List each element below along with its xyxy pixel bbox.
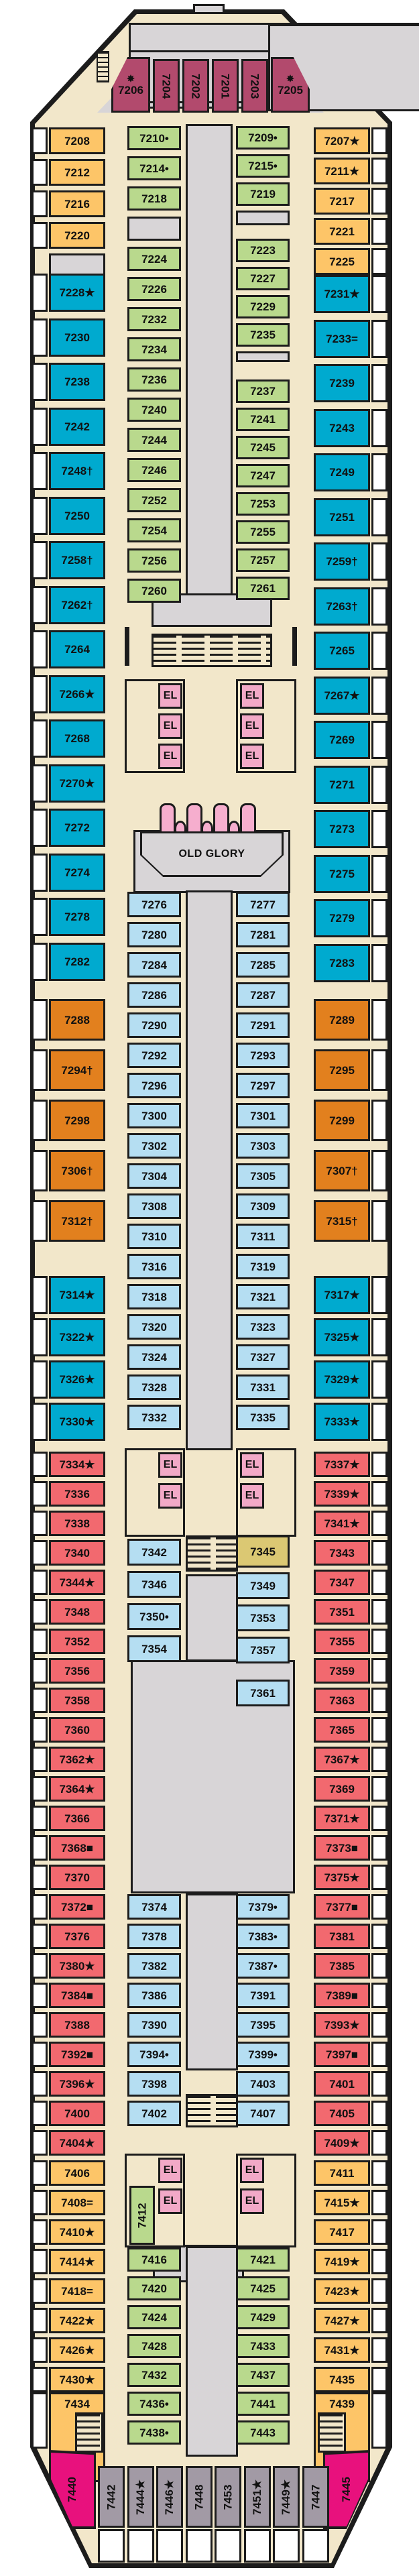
balcony xyxy=(32,1658,48,1684)
cabin-7350: 7350• xyxy=(127,1603,181,1630)
cabin-7233: 7233= xyxy=(314,320,370,358)
balcony xyxy=(371,855,387,893)
public-space-void xyxy=(186,2246,238,2457)
stairs xyxy=(75,2412,103,2453)
cabin-number: 7292 xyxy=(141,1050,167,1061)
cabin-7266: 7266★ xyxy=(49,675,105,713)
balcony xyxy=(371,2042,387,2067)
cabin-number: 7244 xyxy=(141,434,167,446)
cabin-number: 7254 xyxy=(141,525,167,536)
cabin-number: 7231★ xyxy=(324,288,359,300)
balcony xyxy=(371,320,387,358)
cabin-number: 7429 xyxy=(250,2312,276,2323)
cabin-7219: 7219 xyxy=(236,182,290,206)
cabin-7444: 7444★ xyxy=(127,2466,154,2528)
cabin-number: 7258† xyxy=(61,554,93,566)
cabin-number: 7397■ xyxy=(326,2049,358,2060)
cabin-number: 7369 xyxy=(329,1783,355,1795)
cabin-7232: 7232 xyxy=(127,307,181,331)
cabin-number: 7219 xyxy=(250,188,276,200)
cabin-7388: 7388 xyxy=(49,2012,105,2038)
cabin-number: 7337★ xyxy=(324,1459,359,1470)
cabin-number: 7211★ xyxy=(324,166,359,177)
cabin-number: 7266★ xyxy=(59,689,95,700)
cabin-number: 7434 xyxy=(64,2398,90,2410)
balcony xyxy=(32,898,48,936)
cabin-7368: 7368■ xyxy=(49,1835,105,1861)
cabin-number: 7370 xyxy=(64,1872,90,1883)
cabin-7426: 7426★ xyxy=(49,2337,105,2363)
cabin-number: 7308 xyxy=(141,1201,167,1212)
cabin-number: 7297 xyxy=(250,1080,276,1092)
cabin-number: 7396★ xyxy=(59,2079,95,2090)
cabin-number: 7432 xyxy=(141,2369,167,2381)
balcony xyxy=(32,2071,48,2097)
balcony xyxy=(215,2529,241,2563)
cabin-7223: 7223 xyxy=(236,239,290,262)
cabin-7340: 7340 xyxy=(49,1540,105,1566)
cabin-number: 7334★ xyxy=(59,1459,95,1470)
cabin-7351: 7351 xyxy=(314,1599,370,1625)
cabin-7246: 7246 xyxy=(127,458,181,482)
balcony xyxy=(371,2367,387,2392)
cabin-number: 7241 xyxy=(250,414,276,425)
cabin-number: 7342 xyxy=(141,1547,167,1558)
cabin-7259: 7259† xyxy=(314,542,370,581)
cabin-7409: 7409★ xyxy=(314,2130,370,2156)
balcony xyxy=(32,408,48,446)
cabin-number: 7335 xyxy=(250,1412,276,1423)
cabin-7396: 7396★ xyxy=(49,2071,105,2097)
cabin-number: 7418= xyxy=(61,2286,93,2297)
cabin-number: 7445 xyxy=(341,2477,353,2502)
cabin-number: 7290 xyxy=(141,1020,167,1031)
elevator: EL xyxy=(158,683,182,709)
cabin-7256: 7256 xyxy=(127,548,181,573)
cabin-7355: 7355 xyxy=(314,1629,370,1654)
old-glory-ornament xyxy=(160,803,176,835)
cabin-number: 7363 xyxy=(329,1695,355,1706)
balcony xyxy=(371,1100,387,1141)
cabin-number: 7296 xyxy=(141,1080,167,1092)
cabin-number: 7236 xyxy=(141,374,167,386)
cabin-7359: 7359 xyxy=(314,1658,370,1684)
cabin-number: 7356 xyxy=(64,1665,90,1677)
balcony xyxy=(32,222,48,249)
cabin-number: 7451★ xyxy=(251,2479,263,2514)
cabin-number: 7365 xyxy=(329,1724,355,1736)
cabin-number: 7285 xyxy=(250,959,276,971)
balcony xyxy=(371,2249,387,2274)
old-glory-ornament xyxy=(186,803,202,835)
cabin-7437: 7437 xyxy=(236,2363,290,2387)
cabin-7354: 7354 xyxy=(127,1635,181,1662)
cabin-7286: 7286 xyxy=(127,982,181,1008)
balcony xyxy=(371,1717,387,1743)
cabin-7427: 7427★ xyxy=(314,2308,370,2333)
balcony xyxy=(32,1953,48,1979)
balcony xyxy=(186,2529,213,2563)
cabin-7352: 7352 xyxy=(49,1629,105,1654)
cabin-7253: 7253 xyxy=(236,492,290,516)
cabin-number: 7262† xyxy=(61,599,93,611)
cabin-7263: 7263† xyxy=(314,587,370,626)
cabin-number: 7359 xyxy=(329,1665,355,1677)
cabin-7410: 7410★ xyxy=(49,2219,105,2245)
balcony xyxy=(32,1599,48,1625)
cabin-number: 7256 xyxy=(141,555,167,567)
cabin-7236: 7236 xyxy=(127,367,181,392)
cabin-7310: 7310 xyxy=(127,1224,181,1249)
cabin-7420: 7420 xyxy=(127,2276,181,2300)
cabin-7442: 7442 xyxy=(98,2466,125,2528)
cabin-number: 7307† xyxy=(326,1165,357,1177)
cabin-number: 7248† xyxy=(61,465,93,477)
balcony xyxy=(32,2012,48,2038)
cabin-number: 7422★ xyxy=(59,2315,95,2327)
cabin-number: 7387• xyxy=(248,1960,278,1972)
cabin-number: 7354 xyxy=(141,1643,167,1655)
cabin-7332: 7332 xyxy=(127,1405,181,1430)
balcony xyxy=(32,2337,48,2363)
cabin-number: 7408= xyxy=(61,2197,93,2209)
cabin-7415: 7415★ xyxy=(314,2190,370,2215)
cabin-number: 7416 xyxy=(141,2254,167,2266)
cabin-number: 7246 xyxy=(141,465,167,476)
elevator: EL xyxy=(240,2158,264,2183)
balcony xyxy=(371,1200,387,1242)
balcony xyxy=(32,1403,48,1441)
cabin-7381: 7381 xyxy=(314,1924,370,1949)
cabin-7267: 7267★ xyxy=(314,677,370,715)
cabin-number: 7215• xyxy=(248,160,278,172)
cabin-7443: 7443 xyxy=(236,2420,290,2445)
cabin-7311: 7311 xyxy=(236,1224,290,1249)
cabin-number: 7305 xyxy=(250,1171,276,1182)
cabin-7440: 7440 xyxy=(51,2453,94,2526)
cabin-7276: 7276 xyxy=(127,892,181,917)
balcony xyxy=(371,2190,387,2215)
cabin-7273: 7273 xyxy=(314,810,370,848)
elevator: EL xyxy=(158,1452,182,1478)
cabin-number: 7221 xyxy=(329,226,355,237)
old-glory-ornament xyxy=(240,803,256,835)
balcony xyxy=(371,248,387,275)
cabin-number: 7229 xyxy=(250,301,276,312)
balcony xyxy=(371,158,387,184)
cabin-number: 7309 xyxy=(250,1201,276,1212)
wall xyxy=(125,627,129,666)
cabin-7403: 7403 xyxy=(236,2071,290,2097)
cabin-7386: 7386 xyxy=(127,1983,181,2008)
cabin-7240: 7240 xyxy=(127,398,181,422)
cabin-number: 7261 xyxy=(250,583,276,594)
cabin-7353: 7353 xyxy=(236,1604,290,1631)
cabin-number: 7321 xyxy=(250,1291,276,1303)
cabin-7227: 7227 xyxy=(236,267,290,290)
balcony xyxy=(371,1599,387,1625)
cabin-7288: 7288 xyxy=(49,999,105,1041)
cabin-number: 7441 xyxy=(250,2398,276,2410)
cabin-number: 7226 xyxy=(141,284,167,295)
elevator: EL xyxy=(158,2158,182,2183)
cabin-7297: 7297 xyxy=(236,1073,290,1098)
cabin-number: 7204 xyxy=(161,73,172,99)
cabin-number: 7402 xyxy=(141,2108,167,2119)
cabin-7280: 7280 xyxy=(127,922,181,947)
balcony xyxy=(371,1360,387,1399)
cabin-7220: 7220 xyxy=(49,222,105,249)
balcony xyxy=(32,1688,48,1713)
cabin-7218: 7218 xyxy=(127,186,181,211)
cabin-7289: 7289 xyxy=(314,999,370,1041)
balcony xyxy=(32,854,48,892)
cabin-number: 7295 xyxy=(329,1065,355,1076)
cabin-number: 7238 xyxy=(64,376,90,388)
cabin-7399: 7399• xyxy=(236,2042,290,2067)
balcony xyxy=(371,498,387,536)
balcony xyxy=(244,2529,271,2563)
cabin-7330: 7330★ xyxy=(49,1403,105,1441)
balcony xyxy=(32,999,48,1041)
cabin-number: 7235 xyxy=(250,329,276,341)
cabin-number: 7350• xyxy=(139,1611,169,1623)
cabin-number: 7264 xyxy=(64,644,90,655)
cabin-7238: 7238 xyxy=(49,363,105,401)
balcony xyxy=(32,1049,48,1091)
balcony xyxy=(371,1865,387,1890)
cabin-7447: 7447 xyxy=(302,2466,329,2528)
balcony xyxy=(32,2042,48,2067)
cabin-number: 7375★ xyxy=(324,1872,359,1883)
balcony xyxy=(32,541,48,579)
public-space-void xyxy=(186,890,233,1450)
balcony xyxy=(371,721,387,759)
balcony xyxy=(371,944,387,982)
cabin-number: 7245 xyxy=(250,442,276,453)
cabin-7438: 7438• xyxy=(127,2420,181,2445)
cabin-number: 7368■ xyxy=(61,1842,93,1854)
cabin-number: 7392■ xyxy=(61,2049,93,2060)
cabin-number: 7247 xyxy=(250,470,276,481)
cabin-7322: 7322★ xyxy=(49,1318,105,1356)
cabin-number: 7279 xyxy=(329,913,355,924)
cabin-number: 7234 xyxy=(141,344,167,355)
balcony xyxy=(371,1835,387,1861)
cabin-number: 7349 xyxy=(250,1580,276,1592)
cabin-7262: 7262† xyxy=(49,586,105,624)
balcony xyxy=(371,999,387,1041)
cabin-7341: 7341★ xyxy=(314,1511,370,1536)
cabin-7303: 7303 xyxy=(236,1133,290,1159)
balcony xyxy=(371,2308,387,2333)
deck-plan: 72087212721672207228★7230723872427248†72… xyxy=(0,0,419,2576)
cabin-number: 7394• xyxy=(139,2049,169,2060)
balcony xyxy=(127,2529,154,2563)
elevator: EL xyxy=(240,744,264,769)
cabin-number: 7282 xyxy=(64,956,90,968)
cabin-number: 7384■ xyxy=(61,1990,93,2001)
cabin-number: 7339★ xyxy=(324,1488,359,1500)
cabin-7432: 7432 xyxy=(127,2363,181,2387)
balcony xyxy=(371,1318,387,1356)
cabin-number: 7403 xyxy=(250,2079,276,2090)
cabin-number: 7201 xyxy=(220,73,231,99)
cabin-7342: 7342 xyxy=(127,1539,181,1566)
cabin-number: 7371★ xyxy=(324,1813,359,1824)
cabin-7314: 7314★ xyxy=(49,1276,105,1314)
cabin-number: 7280 xyxy=(141,929,167,941)
cabin-number: 7212 xyxy=(64,167,90,178)
cabin-number: 7322★ xyxy=(59,1332,95,1343)
cabin-number: 7267★ xyxy=(324,690,359,701)
cabin-7357: 7357 xyxy=(236,1637,290,1663)
cabin-number: 7206 xyxy=(118,84,143,96)
cabin-number: 7274 xyxy=(64,867,90,878)
cabin-7271: 7271 xyxy=(314,766,370,804)
cabin-number: 7437 xyxy=(250,2369,276,2381)
cabin-7290: 7290 xyxy=(127,1012,181,1038)
cabin-number: 7383• xyxy=(248,1931,278,1942)
balcony xyxy=(32,159,48,186)
balcony xyxy=(371,677,387,715)
cabin-7265: 7265 xyxy=(314,632,370,670)
cabin-number: 7269 xyxy=(329,734,355,746)
cabin-number: 7328 xyxy=(141,1382,167,1393)
cabin-7347: 7347 xyxy=(314,1570,370,1595)
cabin-number: 7240 xyxy=(141,404,167,416)
cabin-7376: 7376 xyxy=(49,1924,105,1949)
balcony xyxy=(371,1276,387,1314)
cabin-7296: 7296 xyxy=(127,1073,181,1098)
cabin-7372: 7372■ xyxy=(49,1894,105,1920)
cabin-number: 7255 xyxy=(250,526,276,538)
cabin-7258: 7258† xyxy=(49,541,105,579)
cabin-7377: 7377■ xyxy=(314,1894,370,1920)
cabin-number: 7379• xyxy=(248,1901,278,1913)
balcony xyxy=(98,2529,125,2563)
cabin-7250: 7250 xyxy=(49,497,105,535)
cabin-7373: 7373■ xyxy=(314,1835,370,1861)
cabin-number: 7331 xyxy=(250,1382,276,1393)
cabin-7251: 7251 xyxy=(314,498,370,536)
cabin-number: 7386 xyxy=(141,1990,167,2001)
cabin-7400: 7400 xyxy=(49,2101,105,2126)
cabin-number: 7366 xyxy=(64,1813,90,1824)
cabin-number: 7217 xyxy=(329,196,355,207)
cabin-number: 7268 xyxy=(64,733,90,744)
balcony xyxy=(371,1806,387,1831)
cabin-7429: 7429 xyxy=(236,2305,290,2329)
cabin-number: 7333★ xyxy=(324,1416,359,1427)
cabin-7234: 7234 xyxy=(127,337,181,361)
cabin-7299: 7299 xyxy=(314,1100,370,1141)
cabin-7343: 7343 xyxy=(314,1540,370,1566)
cabin-number: 7277 xyxy=(250,899,276,911)
cabin-number: 7393★ xyxy=(324,2019,359,2031)
balcony xyxy=(371,1747,387,1772)
cabin-7270: 7270★ xyxy=(49,764,105,803)
cabin-blank xyxy=(236,211,290,225)
cabin-7308: 7308 xyxy=(127,1193,181,1219)
cabin-number: 7252 xyxy=(141,495,167,506)
cabin-7292: 7292 xyxy=(127,1043,181,1068)
cabin-7254: 7254 xyxy=(127,518,181,542)
cabin-number: 7409★ xyxy=(324,2138,359,2149)
balcony xyxy=(371,409,387,447)
balcony xyxy=(32,318,48,357)
cabin-number: 7412 xyxy=(137,2203,148,2228)
cabin-7431: 7431★ xyxy=(314,2337,370,2363)
cabin-number: 7230 xyxy=(64,332,90,343)
cabin-7435: 7435 xyxy=(314,2367,370,2392)
cabin-7245: 7245 xyxy=(236,436,290,459)
cabin-7328: 7328 xyxy=(127,1374,181,1400)
cabin-number: 7382 xyxy=(141,1960,167,1972)
cabin-7451: 7451★ xyxy=(244,2466,271,2528)
cabin-number: 7324 xyxy=(141,1352,167,1363)
balcony xyxy=(156,2529,183,2563)
cabin-7384: 7384■ xyxy=(49,1983,105,2008)
cabin-7203: 7203 xyxy=(241,59,268,113)
cabin-number: 7283 xyxy=(329,957,355,969)
cabin-number: 7265 xyxy=(329,645,355,656)
cabin-number: 7207★ xyxy=(324,135,359,147)
cabin-number: 7406 xyxy=(64,2168,90,2179)
cabin-7209: 7209• xyxy=(236,126,290,150)
cabin-7449: 7449★ xyxy=(273,2466,300,2528)
balcony xyxy=(371,1924,387,1949)
cabin-number: 7220 xyxy=(64,230,90,241)
cabin-number: 7275 xyxy=(329,868,355,880)
balcony xyxy=(371,1452,387,1477)
cabin-7307: 7307† xyxy=(314,1150,370,1191)
cabin-7264: 7264 xyxy=(49,630,105,668)
balcony xyxy=(371,810,387,848)
cabin-number: 7227 xyxy=(250,273,276,284)
cabin-number: 7319 xyxy=(250,1261,276,1273)
cabin-7281: 7281 xyxy=(236,922,290,947)
cabin-number: 7304 xyxy=(141,1171,167,1182)
balcony xyxy=(32,190,48,217)
balcony xyxy=(32,1924,48,1949)
cabin-7329: 7329★ xyxy=(314,1360,370,1399)
cabin-number: 7330★ xyxy=(59,1416,95,1427)
balcony xyxy=(32,2130,48,2156)
balcony xyxy=(32,2160,48,2186)
balcony xyxy=(371,632,387,670)
cabin-7348: 7348 xyxy=(49,1599,105,1625)
cabin-number: 7348 xyxy=(64,1606,90,1618)
cabin-number: 7249 xyxy=(329,467,355,478)
cabin-number: 7435 xyxy=(329,2374,355,2386)
balcony xyxy=(32,2190,48,2215)
cabin-number: 7260 xyxy=(141,585,167,597)
cabin-number: 7362★ xyxy=(59,1754,95,1765)
cabin-number: 7294† xyxy=(61,1065,93,1076)
cabin-number: 7381 xyxy=(329,1931,355,1942)
cabin-7317: 7317★ xyxy=(314,1276,370,1314)
cabin-7255: 7255 xyxy=(236,520,290,544)
balcony xyxy=(32,1200,48,1242)
cabin-7300: 7300 xyxy=(127,1103,181,1128)
cabin-number: 7216 xyxy=(64,198,90,210)
cabin-7387: 7387• xyxy=(236,1953,290,1979)
cabin-7228: 7228★ xyxy=(49,274,105,312)
balcony xyxy=(371,766,387,804)
cabin-7326: 7326★ xyxy=(49,1360,105,1399)
cabin-7312: 7312† xyxy=(49,1200,105,1242)
